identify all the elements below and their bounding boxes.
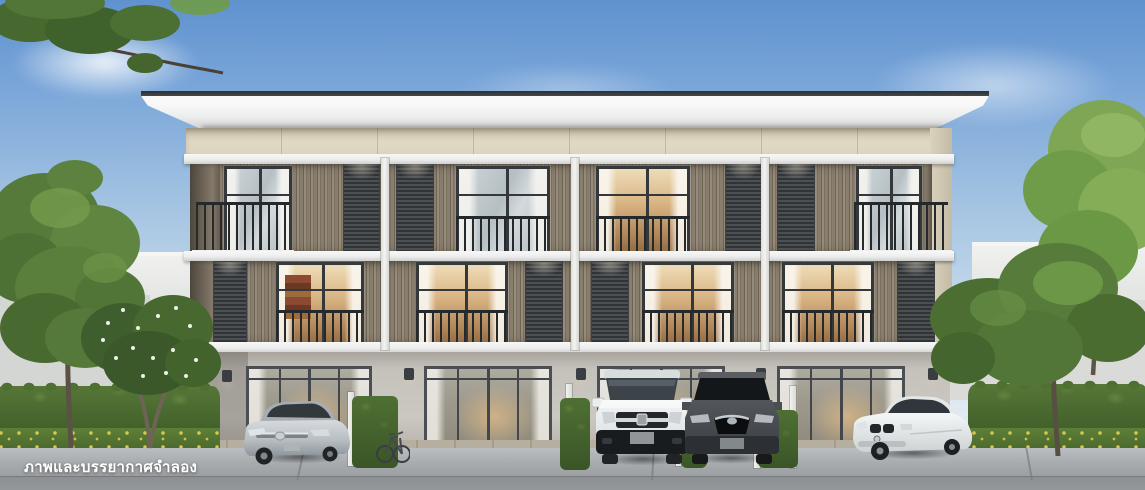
louver-panel-unit4-floor3	[778, 164, 814, 252]
louver-panel-unit1-floor3	[344, 164, 379, 252]
townhome-exterior-rendering: ภาพและบรรยากาศจำลอง	[0, 0, 1145, 490]
louver-panel-unit3-floor3	[726, 164, 761, 252]
window-unit2-floor2-lit	[416, 262, 508, 350]
window-unit1-floor2-lit	[276, 262, 364, 350]
divider-hedge	[560, 398, 590, 470]
louver-panel-unit2-floor2	[526, 262, 562, 344]
door-mullion	[427, 369, 549, 449]
louver-panel-unit3-floor2	[592, 262, 628, 344]
window-unit3-floor3-lit	[596, 166, 690, 258]
unit-divider-post	[761, 158, 769, 350]
ledge-floor2-top	[184, 251, 954, 261]
watermark-text: ภาพและบรรยากาศจำลอง	[24, 455, 197, 479]
window-unit3-floor2-lit	[642, 262, 734, 350]
wall-lamp	[222, 370, 232, 382]
honda-crv-suv	[592, 368, 692, 466]
mazda-sedan	[682, 372, 782, 466]
bicycle	[376, 410, 410, 464]
louver-panel-unit2-floor3	[397, 164, 433, 252]
window-unit4-floor2-lit	[782, 262, 874, 350]
honda-sedan	[240, 396, 352, 466]
ledge-floor3-top	[184, 154, 954, 164]
wall-lamp	[576, 368, 586, 380]
overhanging-branch	[0, 0, 255, 87]
window-unit2-floor3	[456, 166, 550, 258]
roof-fascia	[141, 96, 989, 128]
plumeria-tree	[78, 268, 223, 453]
balcony-railing-unit1	[196, 202, 290, 255]
bmw-coupe	[850, 394, 976, 462]
unit-divider-post	[571, 158, 579, 350]
wall-lamp	[404, 368, 414, 380]
unit-divider-post	[381, 158, 389, 350]
